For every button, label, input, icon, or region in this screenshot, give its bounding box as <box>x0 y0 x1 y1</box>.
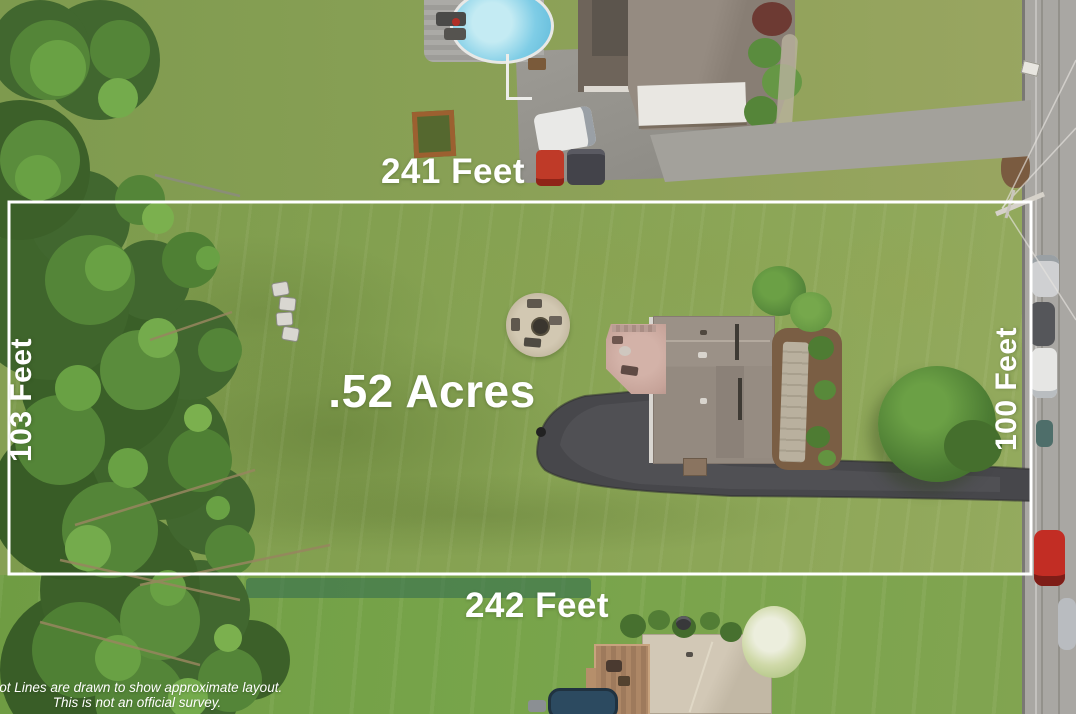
lot-label-left: 103 Feet <box>5 338 39 462</box>
lot-label-bottom: 242 Feet <box>465 586 609 626</box>
dead-branches <box>40 175 330 665</box>
disclaimer-line-1: Lot Lines are drawn to show approximate … <box>0 681 282 696</box>
disclaimer-text: Lot Lines are drawn to show approximate … <box>0 681 282 711</box>
lot-label-right: 100 Feet <box>990 327 1024 451</box>
aerial-photo: 241 Feet .52 Acres 242 Feet 103 Feet 100… <box>0 0 1076 714</box>
lot-label-top: 241 Feet <box>381 152 525 192</box>
disclaimer-line-2: This is not an official survey. <box>0 696 282 711</box>
utility-pole <box>996 194 1044 214</box>
lot-label-area: .52 Acres <box>328 364 535 418</box>
power-lines <box>1000 60 1076 320</box>
